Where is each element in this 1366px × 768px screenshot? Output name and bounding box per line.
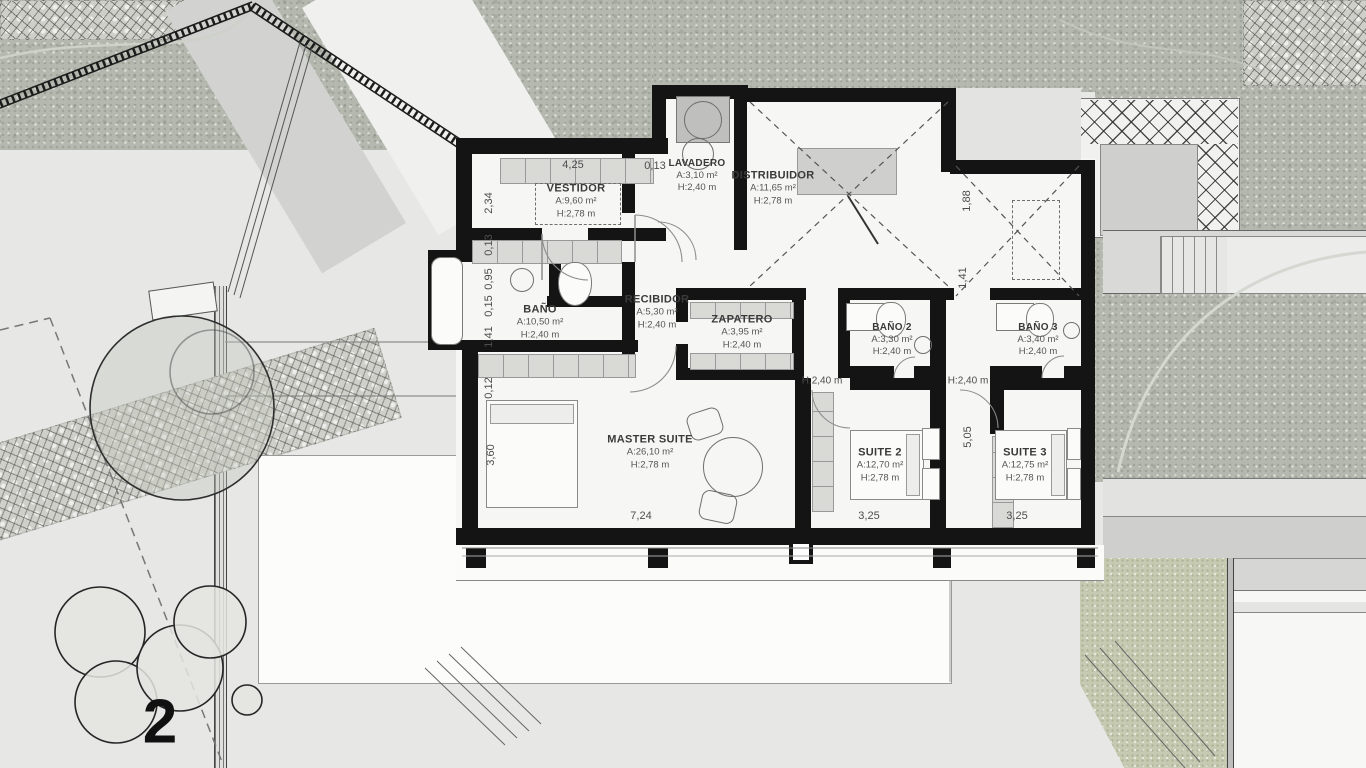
dimension-label: 1,88 [961,190,973,211]
dimension-label: 3,25 [858,510,879,522]
dimension-label: 3,25 [1006,510,1027,522]
dimension-label: 0,13 [644,160,665,172]
room-label-banyo2: BAÑO 2 A:3,30 m² H:2,40 m [871,321,912,359]
room-label-recibidor: RECIBIDOR A:5,30 m² H:2,40 m [625,293,689,332]
dimension-label: 1,41 [483,326,495,347]
room-label-suite2: SUITE 2 A:12,70 m² H:2,78 m [857,446,903,485]
dimension-label: 0,12 [483,377,495,398]
room-label-zapatero: ZAPATERO A:3,95 m² H:2,40 m [711,313,772,352]
dimension-label: 0,15 [483,295,495,316]
dimension-label: 3,60 [485,444,497,465]
door-arc [542,215,1064,428]
room-label-banyo3: BAÑO 3 A:3,40 m² H:2,40 m [1017,321,1058,359]
room-label-master-suite: MASTER SUITE A:26,10 m² H:2,78 m [607,433,693,472]
corridor-height-label: H:2,40 m [948,376,989,387]
room-label-suite3: SUITE 3 A:12,75 m² H:2,78 m [1002,446,1048,485]
room-label-lavadero: LAVADERO A:3,10 m² H:2,40 m [668,157,725,195]
corridor-height-label: H:2,40 m [802,376,843,387]
dimension-label: 4,25 [562,159,583,171]
floor-number: 2 [143,687,177,758]
room-label-banyo: BAÑO A:10,50 m² H:2,40 m [517,303,563,342]
dimension-label: 7,24 [630,510,651,522]
dimension-label: 0,13 [483,234,495,255]
site-plan-canvas: VESTIDOR A:9,60 m² H:2,78 m LAVADERO A:3… [0,0,1366,768]
dimension-label: 5,05 [962,426,974,447]
dimension-label: 1,41 [957,267,969,288]
plan-linework [0,0,1366,768]
room-label-distribuidor: DISTRIBUIDOR A:11,65 m² H:2,78 m [731,169,814,208]
room-label-vestidor: VESTIDOR A:9,60 m² H:2,78 m [547,182,606,221]
dimension-label: 2,34 [483,192,495,213]
dimension-label: 0,95 [483,268,495,289]
